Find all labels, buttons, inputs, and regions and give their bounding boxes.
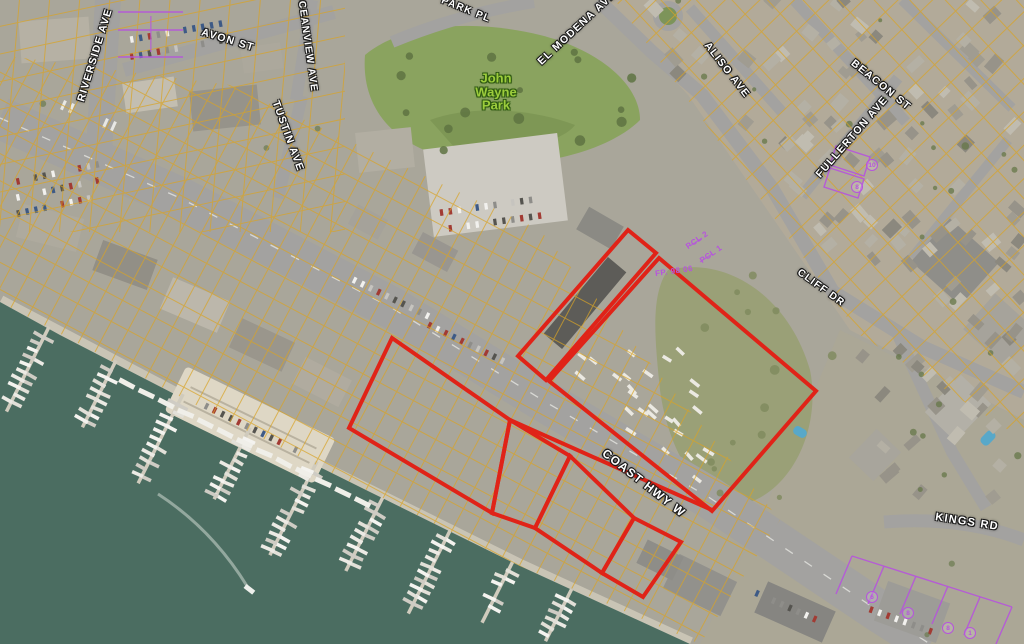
parcel-number-marker: 6 — [866, 591, 878, 603]
parcel-number-marker: 10 — [866, 159, 878, 171]
parcel-number-marker: 8 — [851, 181, 863, 193]
red-parcel-outline-parcel-f[interactable] — [602, 518, 681, 597]
park-label-line: John — [475, 72, 516, 86]
park-label-line: Park — [475, 99, 516, 113]
aerial-map-canvas[interactable]: RIVERSIDE AVE AVON ST OCEANVIEW AVE TUST… — [0, 0, 1024, 644]
parcel-number-marker: 1 — [964, 627, 976, 639]
park-label-john-wayne-park: John Wayne Park — [475, 72, 516, 113]
park-label-line: Wayne — [475, 85, 516, 99]
red-parcel-overlay[interactable] — [349, 230, 816, 597]
parcel-number-marker: 8 — [902, 607, 914, 619]
parcel-number-marker: 8 — [942, 622, 954, 634]
